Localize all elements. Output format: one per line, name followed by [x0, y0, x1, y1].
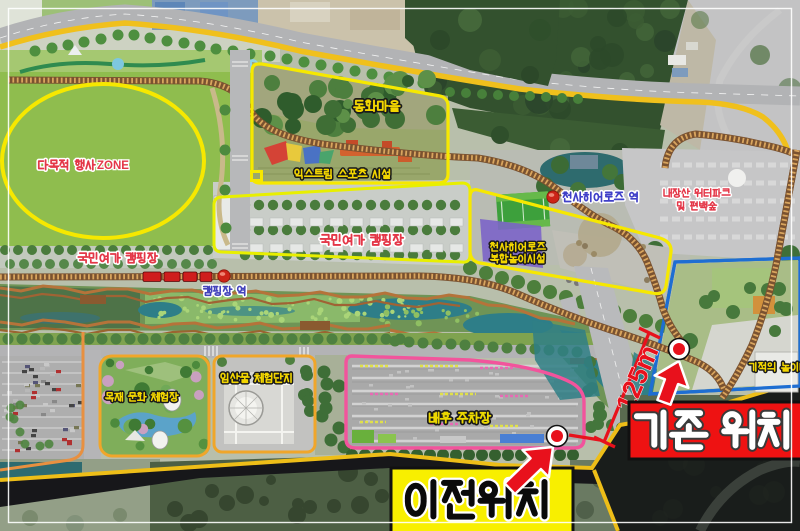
svg-text:ZONE: ZONE [97, 160, 129, 172]
